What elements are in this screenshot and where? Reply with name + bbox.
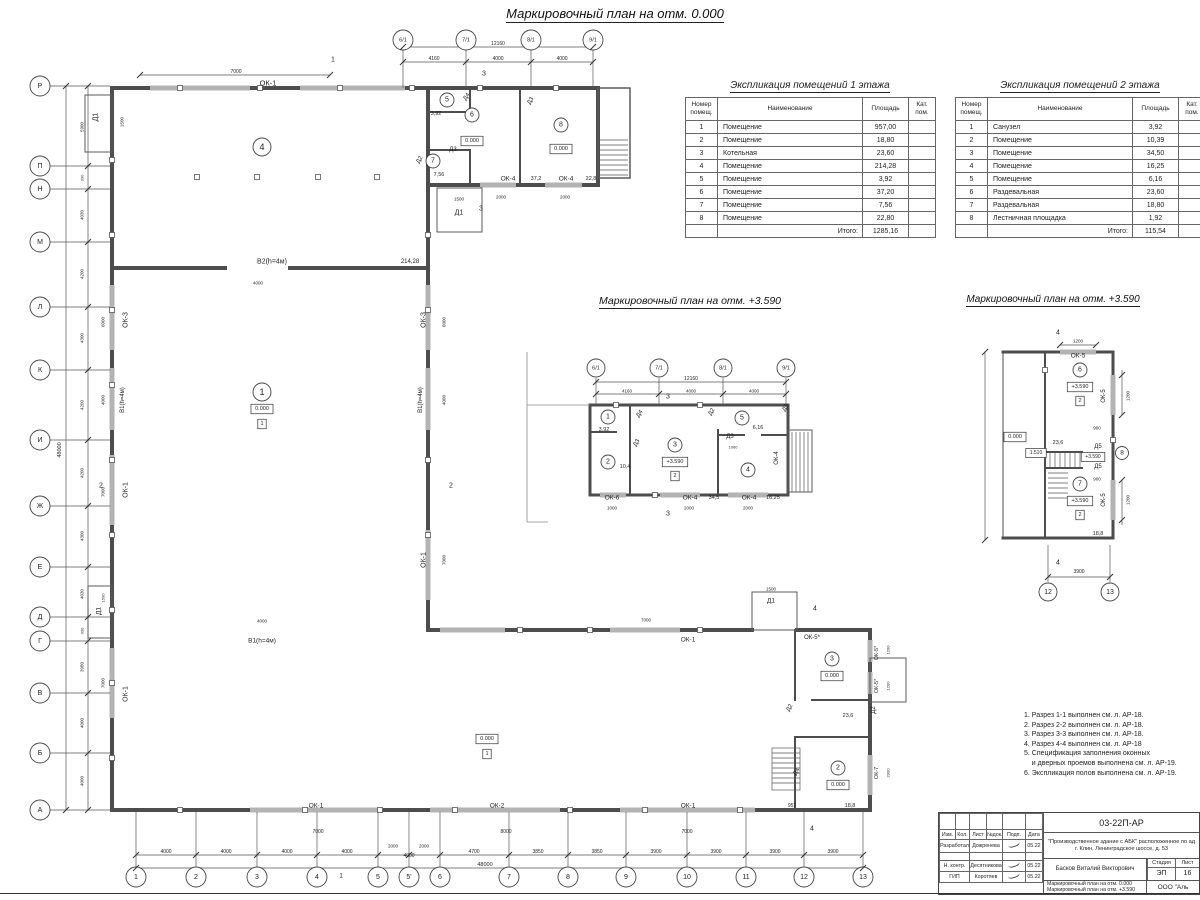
plan-label: 3: [666, 394, 670, 401]
axis-bubble-label: 6/1: [592, 366, 600, 372]
plan-label: ОК-5*: [804, 635, 820, 641]
plan-label: 6,16: [753, 425, 764, 431]
plan-label: 4: [1056, 330, 1060, 337]
plan-label: 2: [836, 765, 840, 772]
plan-label: Д3: [449, 147, 457, 153]
note-line: 4. Разрез 4-4 выполнен см. л. АР-18: [1024, 740, 1200, 750]
plan-label: 900: [1093, 426, 1101, 431]
column-marker: [338, 86, 343, 91]
plan-label: ОК-5: [1101, 389, 1107, 403]
table-cell: 7: [686, 199, 718, 212]
plan-label: ОК-3: [421, 312, 428, 328]
axis-bubble-label: 4: [315, 874, 319, 881]
plan-label: 4000: [80, 775, 85, 786]
table-cell: 3,92: [863, 173, 909, 186]
plan-label: 23,6: [1053, 440, 1064, 446]
table-cell: 2: [956, 134, 988, 147]
column-header: Площадь: [863, 98, 909, 121]
sheet-frame: [0, 893, 1200, 894]
column-marker: [303, 808, 308, 813]
table-cell: 10,39: [1133, 134, 1179, 147]
axis-bubble-label: Ж: [37, 503, 44, 510]
axis-bubble-label: И: [37, 437, 42, 444]
plan-label: 6000: [101, 316, 106, 327]
plan-label: 23,6: [843, 713, 854, 719]
plan-label: Д2: [871, 706, 877, 714]
plan-label: 1500: [120, 116, 125, 127]
column-header: Наименование: [988, 98, 1133, 121]
table-cell: 34,50: [1133, 147, 1179, 160]
table-total-row: Итого:115,54: [956, 225, 1200, 238]
table-cell: 214,28: [863, 160, 909, 173]
plan-label: 7000: [230, 69, 241, 75]
plan-label: 4160: [622, 389, 633, 394]
explication-table: Номер помещ.НаименованиеПлощадьКат. пом.…: [955, 97, 1200, 238]
plan-label: ОК-3: [123, 312, 130, 328]
axis-bubble-label: 12: [800, 874, 808, 881]
plan-label: 1200: [1073, 339, 1084, 344]
table-cell: 3,92: [1133, 121, 1179, 134]
plan-label: 4160: [428, 56, 439, 62]
table-cell: Помещение: [988, 173, 1133, 186]
plan-label: 0.000: [480, 736, 494, 742]
table-cell: Санузел: [988, 121, 1133, 134]
plan-label: 48000: [57, 442, 63, 457]
plan-label: 7: [431, 158, 435, 165]
table-cell: [1179, 186, 1200, 199]
plan-label: 3: [673, 442, 677, 449]
table-cell: Помещение: [718, 173, 863, 186]
table-row: 2Помещение10,39: [956, 134, 1200, 147]
signature-mark: [1006, 840, 1020, 849]
note-line: 1. Разрез 1-1 выполнен см. л. АР-18.: [1024, 711, 1200, 721]
table-cell: [1179, 121, 1200, 134]
plan-label: 2: [1078, 512, 1081, 518]
table-row: 1Санузел3,92: [956, 121, 1200, 134]
plan-label: ОК-1: [681, 803, 696, 810]
plan-label: 957: [788, 803, 797, 809]
table-cell: Помещение: [988, 134, 1133, 147]
plan-label: 1500: [766, 587, 777, 592]
axis-bubble-label: 5: [376, 874, 380, 881]
stamp-cell: [1026, 814, 1043, 830]
mid-plan-walls: [590, 405, 788, 495]
plan-label: 1200: [1126, 390, 1131, 401]
title-block: Изм.Кол.Лист№док.Подп.ДатаРазработалДожр…: [938, 812, 1200, 895]
axis-bubble-label: Р: [38, 83, 43, 90]
table-row: 7Помещение7,56: [686, 199, 936, 212]
plan-label: 1200: [886, 645, 891, 655]
date-cell: 05.22: [1026, 861, 1043, 872]
table-cell: 6,16: [1133, 173, 1179, 186]
plan-label: 4: [746, 467, 750, 474]
plan-label: 1.510: [1030, 450, 1043, 456]
plan-label: ОК-1: [681, 637, 696, 644]
plan-label: 3850: [532, 849, 543, 855]
plan-label: ОК-5*: [874, 645, 880, 660]
plan-label: ОК-1: [421, 552, 428, 568]
column-marker: [738, 808, 743, 813]
stamp-cell: [1003, 840, 1026, 853]
axis-bubble-label: 13: [1106, 589, 1114, 596]
plan-label: 1500: [101, 593, 106, 603]
plan-label: 1200: [1126, 494, 1131, 505]
plan-label: ОК-1: [309, 803, 324, 810]
table-cell: 1285,16: [863, 225, 909, 238]
column-header: Площадь: [1133, 98, 1179, 121]
plan-label: 6: [470, 112, 474, 119]
axis-bubble-label: 13: [859, 874, 867, 881]
column-marker: [653, 493, 658, 498]
plan-label: 34,5: [709, 495, 720, 501]
plan-label: 2000: [388, 844, 399, 849]
plan-label: 4000: [556, 56, 567, 62]
table-cell: Помещение: [718, 160, 863, 173]
column-marker: [378, 808, 383, 813]
signature-mark: [1006, 872, 1020, 880]
axis-bubble-label: 12: [1044, 589, 1052, 596]
plan-label: 5: [445, 97, 449, 104]
axis-bubble-label: 11: [742, 874, 749, 881]
plan-label: Д2: [708, 407, 717, 417]
table-cell: [1179, 173, 1200, 186]
plan-label: 4: [813, 606, 817, 613]
author-name: Басков Виталий Викторович: [1044, 859, 1147, 880]
plan-label: 1: [259, 387, 264, 397]
stamp-cell: [956, 814, 970, 830]
plan-label: 4030: [80, 588, 85, 599]
table-row: 6Раздевальная23,60: [956, 186, 1200, 199]
stamp-header: Подп.: [1003, 830, 1026, 840]
table-cell: [1179, 134, 1200, 147]
table-cell: [909, 160, 936, 173]
plan-label: 0.000: [831, 782, 845, 788]
plan-label: 8: [1120, 450, 1124, 457]
plan-label: ОК-6: [605, 495, 620, 502]
table-cell: 1,92: [1133, 212, 1179, 225]
plan-label: 1: [260, 421, 263, 427]
stage-sheet-grid: Стадия Лист ЭП 16: [1147, 859, 1199, 880]
plan-label: 4300: [80, 332, 85, 343]
table-row: 3Котельная23,60: [686, 147, 936, 160]
plan-label: ОК-1: [260, 79, 277, 88]
plan-label: 7,56: [434, 172, 445, 178]
table-cell: Раздевальная: [988, 186, 1133, 199]
plan-label: 4: [1056, 560, 1060, 567]
plan-label: 900: [1093, 477, 1101, 482]
note-line: и дверных проемов выполнена см. л. АР-19…: [1024, 759, 1200, 769]
axis-bubble-label: 10: [683, 874, 691, 881]
plan-label: 330: [80, 174, 85, 181]
table-cell: Раздевальная: [988, 199, 1133, 212]
table-cell: 3: [686, 147, 718, 160]
axis-bubble-label: Г: [38, 638, 42, 645]
table-cell: [909, 186, 936, 199]
right-plan-stairs: [1048, 452, 1080, 498]
table-cell: 957,00: [863, 121, 909, 134]
column-header: Кат. пом.: [909, 98, 936, 121]
drawing-sheet: РПНМЛКИЖЕДГВБА123455'6789101112136/17/18…: [0, 0, 1200, 900]
column-marker: [110, 383, 115, 388]
plan-label: ОК-4: [774, 451, 780, 465]
axis-bubble-label: 5': [406, 874, 411, 881]
plan-label: +3.590: [1085, 454, 1101, 460]
table-cell: [956, 225, 988, 238]
column-header: Кат. пом.: [1179, 98, 1200, 121]
table-cell: Помещение: [718, 199, 863, 212]
plan-label: 3900: [769, 849, 780, 855]
plan-label: 2000: [684, 506, 695, 511]
axis-bubble-label: 1: [134, 874, 138, 881]
plan-title-0000-text: Маркировочный план на отм. 0.000: [506, 6, 724, 23]
table-title-floor2: Экспликация помещений 2 этажа: [955, 80, 1200, 91]
stamp-header: Кол.: [956, 830, 970, 840]
plan-label: 1: [339, 873, 343, 880]
plan-label: 2: [1078, 398, 1081, 404]
column-marker: [110, 533, 115, 538]
plan-label: 4000: [442, 394, 447, 405]
plan-label: 22,8: [586, 176, 597, 182]
plan-label: 2: [99, 483, 103, 490]
role-cell: ГИП: [940, 872, 970, 883]
table-cell: Котельная: [718, 147, 863, 160]
plan-label: 3,92: [431, 111, 442, 117]
table-row: 8Помещение22,80: [686, 212, 936, 225]
axis-bubble-label: 8/1: [719, 366, 727, 372]
plan-label: 18,8: [1093, 531, 1104, 537]
plan-label: Д3: [726, 434, 734, 440]
project-title: "Производственное здание с АБК" располож…: [1044, 833, 1199, 858]
axis-bubble-label: 2: [194, 874, 198, 881]
plan-label: ОК-4: [742, 495, 757, 502]
plan-label: 12160: [684, 376, 698, 382]
plan-label: 3: [666, 511, 670, 518]
column-marker: [255, 175, 260, 180]
column-marker: [1043, 368, 1048, 373]
plan-label: 4: [259, 142, 264, 152]
plan-label: 3,92: [599, 427, 610, 433]
plan-label: 0.000: [554, 146, 568, 152]
plan-label: 2: [449, 483, 453, 490]
axis-bubble-label: Л: [38, 304, 43, 311]
plan-label: Д2: [416, 155, 425, 165]
table-cell: 18,80: [863, 134, 909, 147]
plan-label: 2: [673, 473, 676, 479]
plan-label: Д3: [527, 96, 536, 106]
axis-bubble-label: 8: [566, 874, 570, 881]
plan-label: 0.000: [255, 406, 269, 412]
role-cell: Н. контр.: [940, 861, 970, 872]
plan-label: 4300: [80, 530, 85, 541]
plan-label: 1: [331, 57, 335, 64]
plan-label: 0.000: [465, 138, 479, 144]
plan-label: 8: [559, 122, 563, 129]
plan-label: 4000: [257, 619, 268, 624]
date-cell: 05.22: [1026, 872, 1043, 883]
column-marker: [426, 233, 431, 238]
plan-label: 5900: [80, 121, 85, 132]
table-row: 5Помещение3,92: [686, 173, 936, 186]
plan-label: 1500: [454, 197, 465, 202]
plan-label: 4200: [80, 467, 85, 478]
column-marker: [316, 175, 321, 180]
axis-bubble-label: 6: [438, 874, 442, 881]
plan-label: Д1: [93, 113, 100, 122]
table-row: 6Помещение37,20: [686, 186, 936, 199]
plan-label: 4000: [101, 394, 106, 405]
table-cell: 4: [956, 160, 988, 173]
doc-number: 03-22П-АР: [1044, 813, 1199, 833]
plan-label: ОК-1: [123, 686, 130, 702]
column-header: Номер помещ.: [686, 98, 718, 121]
table-cell: [909, 199, 936, 212]
stamp-header: Изм.: [940, 830, 956, 840]
column-marker: [375, 175, 380, 180]
axis-bubble-label: Е: [38, 564, 43, 571]
table-cell: [686, 225, 718, 238]
plan-label: ОК-5: [1101, 493, 1107, 507]
plan-label: 3: [479, 206, 483, 213]
column-marker: [1111, 438, 1116, 443]
column-marker: [110, 458, 115, 463]
explication-table-floor2: Экспликация помещений 2 этажа Номер поме…: [955, 80, 1200, 238]
stamp-cell: [987, 814, 1003, 830]
plan-label: 214,28: [401, 259, 420, 265]
stamp-cell: [1003, 853, 1026, 861]
table-cell: 23,60: [863, 147, 909, 160]
plan-label: 5: [740, 415, 744, 422]
table-cell: 23,60: [1133, 186, 1179, 199]
plan-label: Д1: [767, 598, 775, 605]
plan-label: 4000: [160, 849, 171, 855]
plan-label: В1(h=4м): [418, 387, 424, 413]
plan-label: 7000: [641, 618, 652, 623]
plan-label: 48000: [477, 862, 492, 868]
role-cell: Разработал: [940, 840, 970, 853]
table-cell: 6: [686, 186, 718, 199]
table-cell: 7,56: [863, 199, 909, 212]
table-cell: 5: [956, 173, 988, 186]
column-marker: [426, 458, 431, 463]
plan-label: 4000: [749, 389, 760, 394]
plan-label: 16,25: [766, 495, 780, 501]
axis-bubble-label: А: [38, 807, 43, 814]
table-cell: 115,54: [1133, 225, 1179, 238]
stamp-header: Лист: [970, 830, 987, 840]
table-cell: Помещение: [988, 147, 1133, 160]
plan-label: 3980: [80, 661, 85, 672]
column-marker: [178, 86, 183, 91]
plan-label: 7000: [312, 829, 323, 835]
column-marker: [110, 681, 115, 686]
stage-label: Стадия: [1147, 859, 1175, 868]
note-line: 3. Разрез 3-3 выполнен см. л. АР-18.: [1024, 730, 1200, 740]
plan-label: Д2: [786, 703, 795, 713]
plan-label: Д3: [633, 438, 642, 448]
table-cell: [909, 134, 936, 147]
plan-label: 2000: [743, 506, 754, 511]
plan-label: ОК-4: [683, 495, 698, 502]
plan-title-3590-mid: Маркировочный план на отм. +3.590: [590, 295, 790, 307]
plan-label: 330: [80, 627, 85, 634]
axis-bubble-label: 3: [255, 874, 259, 881]
column-header: Номер помещ.: [956, 98, 988, 121]
table-cell: [909, 121, 936, 134]
axis-bubble-label: П: [37, 163, 42, 170]
plan-label: ОК-4: [559, 176, 574, 183]
table-row: 4Помещение16,25: [956, 160, 1200, 173]
table-row: 4Помещение214,28: [686, 160, 936, 173]
column-marker: [614, 403, 619, 408]
table-cell: Помещение: [718, 212, 863, 225]
table-cell: 5: [686, 173, 718, 186]
table-cell: 2: [686, 134, 718, 147]
axis-bubble-label: 7/1: [462, 38, 470, 44]
table-cell: [1179, 147, 1200, 160]
axis-bubble-label: М: [37, 239, 43, 246]
table-cell: 22,80: [863, 212, 909, 225]
plan-label: 6000: [442, 316, 447, 327]
plan-label: ОК-4: [501, 176, 516, 183]
axis-bubble-label: 7/1: [655, 366, 663, 372]
column-marker: [554, 86, 559, 91]
column-marker: [698, 628, 703, 633]
column-marker: [518, 628, 523, 633]
plan-label: 3900: [827, 849, 838, 855]
plan-label: 0.000: [1008, 434, 1022, 440]
plan-label: 1000: [729, 445, 739, 450]
plan-label: +3.590: [667, 459, 684, 465]
stamp-cell: [970, 814, 987, 830]
signature-mark: [1006, 861, 1020, 869]
mid-plan-roof-outline: [527, 352, 590, 522]
plan-label: +3.590: [1072, 384, 1089, 390]
mid-plan-stairs: [792, 432, 808, 492]
table-row: 7Раздевальная18,80: [956, 199, 1200, 212]
project-title-line1: "Производственное здание с АБК" располож…: [1044, 839, 1199, 846]
stamp-cell: [940, 853, 970, 861]
plan-label: Д4: [635, 409, 645, 419]
plan-label: ОК-1: [123, 482, 130, 498]
column-marker: [453, 808, 458, 813]
plan-label: Д1: [455, 210, 464, 217]
table-cell: Помещение: [718, 134, 863, 147]
table-row: 8Лестничная площадка1,92: [956, 212, 1200, 225]
table-title-floor1: Экспликация помещений 1 этажа: [685, 80, 935, 91]
plan-label: 7000: [101, 677, 106, 688]
name-cell: Десятникова: [970, 861, 1003, 872]
plan-label: 4000: [403, 853, 414, 859]
plan-label: 1: [606, 414, 610, 421]
table-cell: 4: [686, 160, 718, 173]
plan-label: 0.000: [825, 673, 839, 679]
plan-label: 3900: [650, 849, 661, 855]
table-cell: [909, 173, 936, 186]
plan-label: 7000: [681, 829, 692, 835]
plan-label: ОК-5*: [874, 678, 880, 693]
column-marker: [698, 403, 703, 408]
plan-label: 8000: [500, 829, 511, 835]
stamp-cell: [1026, 853, 1043, 861]
plan-label: 3: [482, 71, 486, 78]
plan-label: 3900: [710, 849, 721, 855]
plan-label: 4000: [253, 281, 264, 286]
column-marker: [410, 86, 415, 91]
table-cell: 18,80: [1133, 199, 1179, 212]
plan-label: 1200: [886, 681, 891, 691]
stamp-cell: [970, 853, 1003, 861]
table-cell: [909, 212, 936, 225]
